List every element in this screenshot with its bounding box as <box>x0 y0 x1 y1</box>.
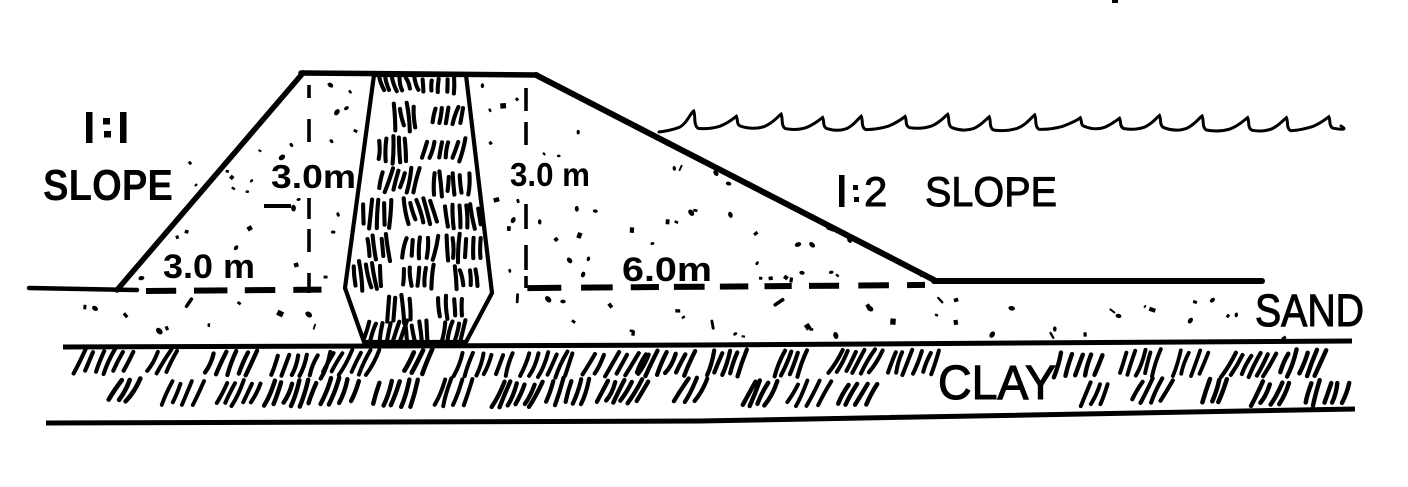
svg-text:SAND: SAND <box>1255 285 1364 336</box>
svg-text:3.0m: 3.0m <box>271 158 356 195</box>
svg-text:3.0 m: 3.0 m <box>510 156 590 193</box>
svg-text:6.0m: 6.0m <box>622 251 712 289</box>
svg-text:3.0 m: 3.0 m <box>163 248 255 286</box>
svg-text:SLOPE: SLOPE <box>925 168 1057 215</box>
svg-text:SLOPE: SLOPE <box>43 161 173 210</box>
svg-text:2: 2 <box>864 168 889 215</box>
svg-text:CLAY: CLAY <box>938 357 1056 410</box>
